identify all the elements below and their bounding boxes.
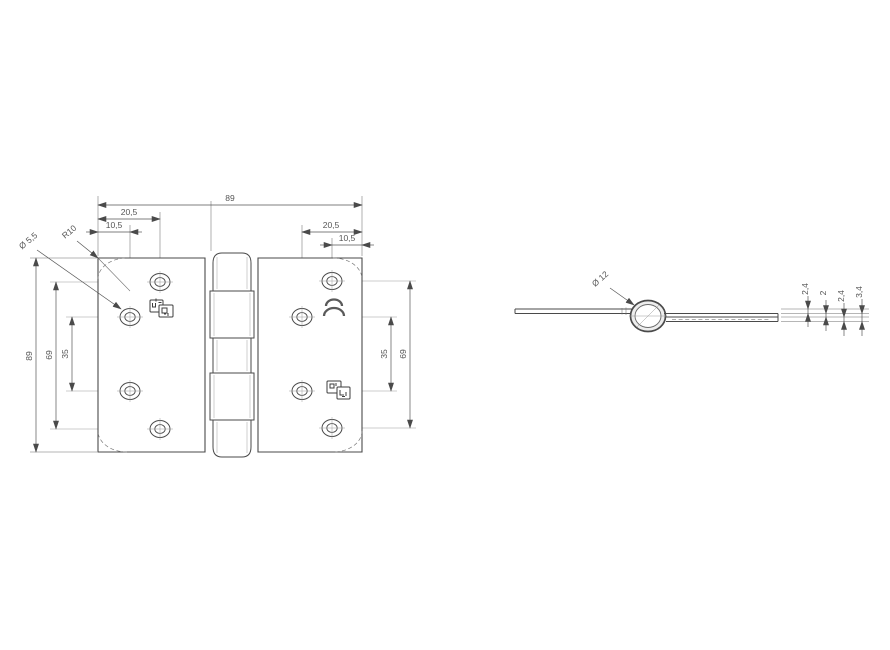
hinge-technical-drawing: 89 20,5 10,5 20,5 10,5 89 69 <box>0 0 890 650</box>
knuckle-diameter-leader: Ø 12 <box>590 269 634 305</box>
dim-left-span-inner-label: 35 <box>60 349 70 359</box>
dim-left-span-inner: 35 <box>60 317 72 391</box>
front-view: 89 20,5 10,5 20,5 10,5 89 69 <box>17 193 416 457</box>
dim-right-span-outer-label: 69 <box>398 349 408 359</box>
dim-thickness-2: 2 <box>818 290 828 331</box>
drawing-sheet: 89 20,5 10,5 20,5 10,5 89 69 <box>0 0 890 650</box>
dim-thickness-3: 2,4 <box>836 290 846 336</box>
dim-right-span-inner-label: 35 <box>379 349 389 359</box>
dim-right-offset-outer-label: 20,5 <box>323 220 340 230</box>
dim-right-span-inner: 35 <box>379 317 391 391</box>
dim-thickness-3-label: 2,4 <box>836 290 846 302</box>
dim-left-span-outer-label: 69 <box>44 350 54 360</box>
side-right-leaf <box>664 314 778 322</box>
dim-overall-width-label: 89 <box>225 193 235 203</box>
dim-left-offset-outer: 20,5 <box>98 207 160 219</box>
corner-radius-label: R10 <box>60 223 79 241</box>
dim-right-span-outer: 69 <box>398 281 410 428</box>
dim-right-offset-outer: 20,5 <box>302 220 362 232</box>
knuckle-diameter-label: Ø 12 <box>590 269 611 289</box>
dim-thickness-4: 3,4 <box>854 286 864 336</box>
extension-lines-side <box>781 309 869 322</box>
dim-left-offset-inner-label: 10,5 <box>106 220 123 230</box>
dim-overall-width: 89 <box>98 193 362 205</box>
dim-thickness-4-label: 3,4 <box>854 286 864 298</box>
dim-overall-height: 89 <box>24 258 36 452</box>
hinge-barrel <box>210 253 254 457</box>
hinge-right-leaf <box>258 258 362 452</box>
dim-left-offset-outer-label: 20,5 <box>121 207 138 217</box>
side-left-leaf <box>515 308 633 316</box>
dim-thickness-1-label: 2,4 <box>800 283 810 295</box>
dim-right-offset-inner: 10,5 <box>320 233 374 245</box>
dim-overall-height-label: 89 <box>24 351 34 361</box>
dim-right-offset-inner-label: 10,5 <box>339 233 356 243</box>
dim-left-span-outer: 69 <box>44 282 56 429</box>
dim-thickness-1: 2,4 <box>800 283 810 327</box>
dim-left-offset-inner: 10,5 <box>86 220 142 232</box>
dim-thickness-2-label: 2 <box>818 290 828 295</box>
side-view: 2,4 2 2,4 3,4 Ø 12 <box>515 269 869 336</box>
side-knuckle <box>629 301 667 332</box>
hole-diameter-label: Ø 5,5 <box>17 230 40 251</box>
